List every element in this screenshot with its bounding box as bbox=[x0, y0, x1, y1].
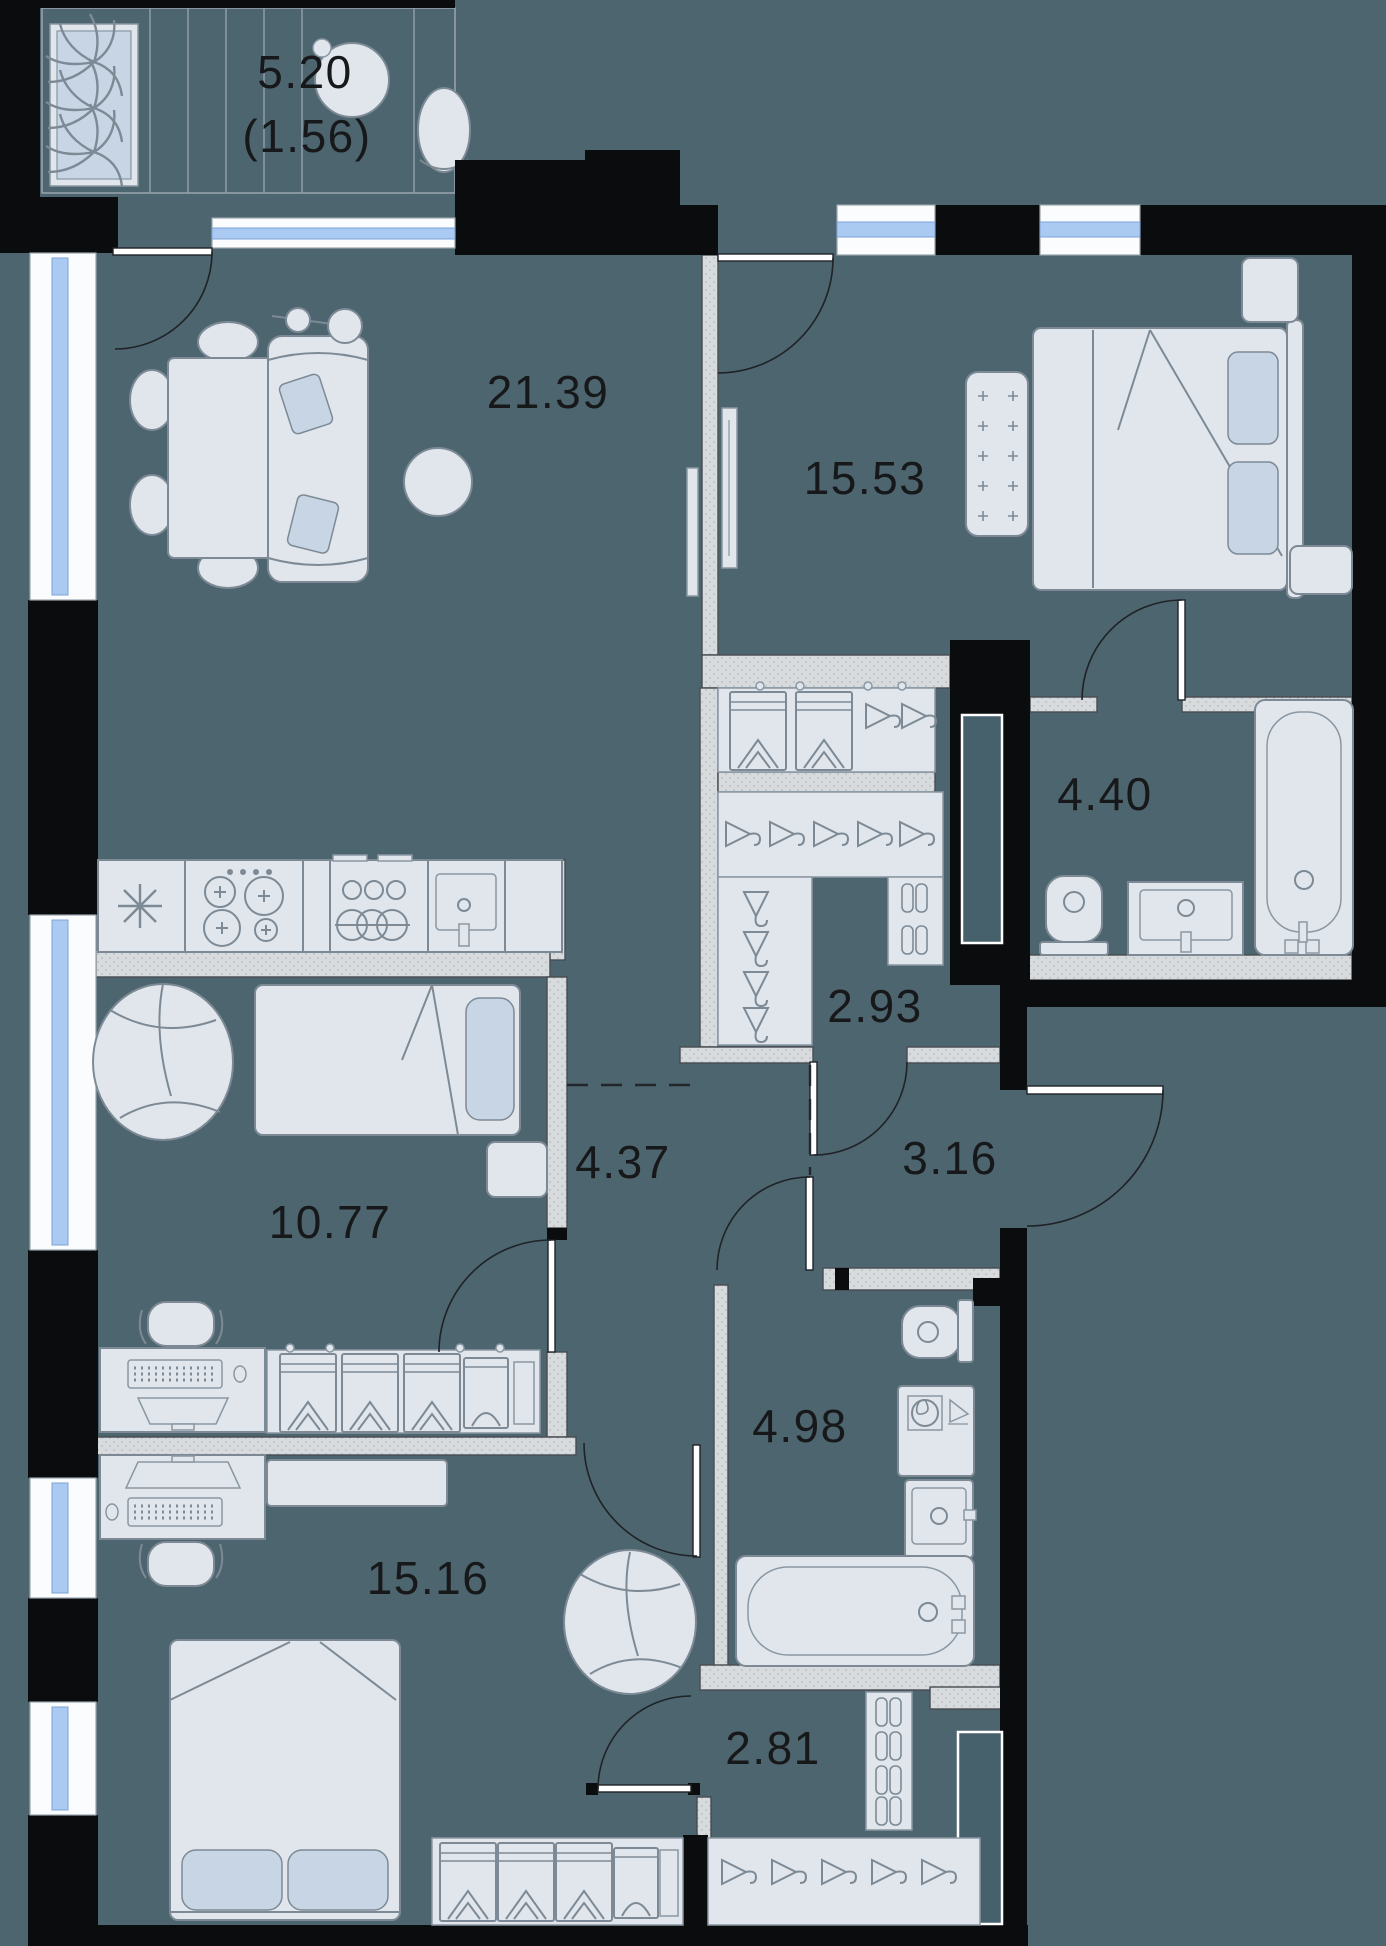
single-bed-icon bbox=[255, 985, 520, 1135]
duct-shaft-icon bbox=[962, 715, 1002, 943]
office-chair-icon bbox=[140, 1542, 223, 1586]
bathtub-icon bbox=[1255, 700, 1353, 955]
pillow-icon bbox=[1228, 462, 1278, 554]
desk-icon bbox=[100, 1455, 265, 1539]
window-left-4 bbox=[30, 1702, 96, 1815]
room-area-label-balcony-reduced: (1.56) bbox=[242, 110, 371, 162]
double-bed-icon bbox=[1033, 320, 1303, 598]
nightstand-icon bbox=[1242, 258, 1298, 322]
floor-plan-svg: 5.20 (1.56) bbox=[0, 0, 1386, 1946]
entry-wardrobe-icon bbox=[708, 1838, 980, 1925]
nightstand-icon bbox=[487, 1142, 547, 1197]
monitor-icon bbox=[126, 1462, 240, 1488]
fridge-icon bbox=[118, 884, 162, 928]
window-left-1 bbox=[30, 253, 96, 600]
room-area-label-ensuite: 4.40 bbox=[1057, 768, 1153, 820]
room-area-label-living: 21.39 bbox=[487, 366, 610, 418]
toilet-icon bbox=[902, 1300, 973, 1362]
plant-icon bbox=[46, 14, 138, 186]
sink-icon bbox=[905, 1480, 976, 1558]
pillow-icon bbox=[182, 1850, 282, 1910]
mouse-icon bbox=[106, 1504, 118, 1520]
bench-icon bbox=[966, 372, 1028, 536]
window-left-2 bbox=[30, 915, 96, 1250]
bathtub-icon bbox=[736, 1556, 974, 1666]
balcony-chair-icon bbox=[418, 88, 470, 172]
pillow-icon bbox=[288, 1850, 388, 1910]
wardrobe-icon bbox=[267, 1344, 540, 1433]
room-area-label-second-bedroom: 15.16 bbox=[367, 1552, 490, 1604]
desk-icon bbox=[100, 1348, 265, 1432]
window-left-3 bbox=[30, 1478, 96, 1598]
room-area-label-hallway: 3.16 bbox=[902, 1132, 998, 1184]
toilet-icon bbox=[1040, 876, 1108, 955]
coffee-table-icon bbox=[404, 448, 472, 516]
room-area-label-bedroom: 15.53 bbox=[804, 452, 927, 504]
closet-rail-icon bbox=[718, 877, 812, 1045]
window-top-2 bbox=[1040, 205, 1140, 255]
tv-console-icon bbox=[687, 468, 698, 596]
room-area-label-entry: 2.81 bbox=[725, 1722, 821, 1774]
wardrobe-icon bbox=[432, 1838, 683, 1925]
room-area-label-balcony: 5.20 bbox=[257, 46, 353, 98]
window-balcony-band bbox=[212, 218, 455, 248]
shoe-rack-icon bbox=[866, 1692, 912, 1830]
double-bed-icon bbox=[170, 1640, 400, 1920]
kitchen-counter bbox=[98, 855, 562, 952]
mouse-icon bbox=[234, 1366, 246, 1382]
room-area-label-kids-room: 10.77 bbox=[269, 1196, 392, 1248]
washing-machine-icon bbox=[898, 1386, 974, 1476]
monitor-icon bbox=[138, 1398, 228, 1424]
bean-bag-icon bbox=[564, 1550, 696, 1694]
office-chair-icon bbox=[140, 1302, 223, 1346]
pillow-icon bbox=[1228, 352, 1278, 444]
room-area-label-bathroom: 4.98 bbox=[752, 1400, 848, 1452]
window-top-1 bbox=[837, 205, 935, 255]
vanity-sink-icon bbox=[1128, 882, 1243, 955]
pillow-icon bbox=[466, 998, 514, 1120]
nightstand-icon bbox=[1290, 546, 1352, 594]
room-area-label-corridor: 4.37 bbox=[575, 1136, 671, 1188]
bean-bag-icon bbox=[93, 984, 233, 1140]
room-area-label-closet: 2.93 bbox=[827, 980, 923, 1032]
sofa-icon bbox=[268, 336, 368, 582]
sideboard-icon bbox=[267, 1460, 447, 1506]
floor-plan-page: 5.20 (1.56) bbox=[0, 0, 1386, 1946]
